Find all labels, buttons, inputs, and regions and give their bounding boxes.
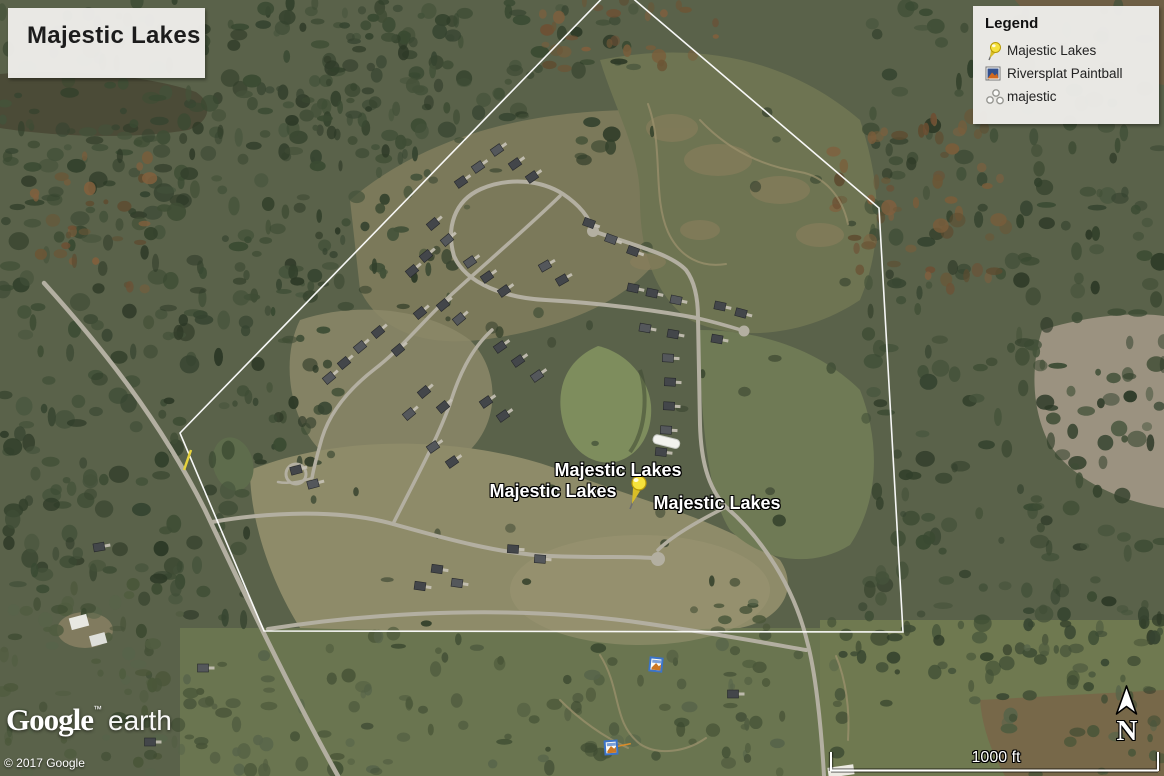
legend-item-riversplat: Riversplat Paintball [985, 62, 1153, 85]
legend-header: Legend [985, 15, 1153, 32]
placemark-label[interactable]: Majestic Lakes [642, 493, 792, 514]
photo-placemark-icon[interactable] [649, 657, 662, 671]
placemark-label[interactable]: Majestic Lakes [543, 460, 693, 481]
placemark-label[interactable]: Majestic Lakes [478, 481, 628, 502]
legend-item-majestic: majestic [985, 85, 1153, 108]
google-earth-logo: Google™earth [6, 702, 172, 738]
photo-icon [985, 66, 1007, 81]
logo-earth-text: earth [108, 705, 172, 736]
map-canvas[interactable]: Majestic Lakes Majestic Lakes Majestic L… [0, 0, 1164, 776]
map-title: Majestic Lakes [27, 22, 205, 50]
legend-panel: Legend Majestic Lakes [973, 6, 1159, 124]
pushpin-icon [985, 41, 1007, 61]
legend-item-label: Majestic Lakes [1007, 43, 1096, 58]
scale-label: 1000 ft [950, 749, 1042, 767]
legend-item-label: Riversplat Paintball [1007, 66, 1123, 81]
logo-tm: ™ [93, 704, 102, 714]
legend-item-majestic-lakes: Majestic Lakes [985, 39, 1153, 62]
polygon-points-icon [985, 88, 1007, 106]
legend-item-label: majestic [1007, 89, 1057, 104]
north-label: N [1108, 715, 1146, 748]
logo-google-text: Google [6, 702, 93, 737]
map-title-panel: Majestic Lakes [8, 8, 205, 78]
copyright-text: © 2017 Google [4, 756, 85, 770]
